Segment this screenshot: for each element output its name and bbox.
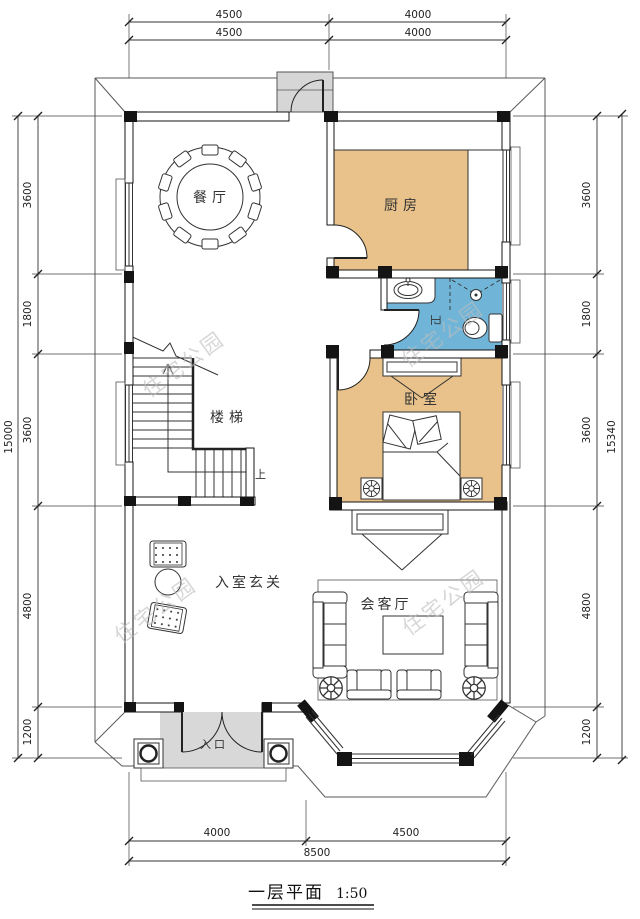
dim-left-5: 1200 <box>22 719 34 746</box>
label-stairs: 楼梯 <box>210 410 248 426</box>
title-scale: 1:50 <box>336 886 367 902</box>
label-dining: 餐厅 <box>193 190 231 206</box>
dimension-annotations: 4500 4000 4500 4000 4000 4500 8500 3600 … <box>3 9 628 866</box>
sofa-right <box>464 592 498 678</box>
dim-left-1: 3600 <box>22 182 34 209</box>
foyer-armchair-1 <box>150 541 186 567</box>
dim-left-3: 3600 <box>22 417 34 444</box>
label-kitchen: 厨房 <box>384 198 422 214</box>
dim-right-3: 3600 <box>581 417 593 444</box>
nightstand-left <box>361 478 382 499</box>
window-stairs-left <box>116 382 133 465</box>
plant-right <box>463 677 486 700</box>
dim-right-1: 3600 <box>581 182 593 209</box>
armchair-bottom-1 <box>347 670 391 699</box>
plant-left <box>320 677 343 700</box>
dim-left-2: 1800 <box>22 301 34 328</box>
bed <box>383 412 460 500</box>
dim-right-total: 15340 <box>606 420 618 453</box>
porch-column-right <box>264 739 293 768</box>
porch-step <box>141 768 286 781</box>
dims-left: 3600 1800 3600 4800 1200 15000 <box>3 112 122 762</box>
dims-right: 3600 1800 3600 4800 1200 15340 <box>513 110 628 764</box>
label-entrance: 入口 <box>200 738 228 751</box>
armchair-bottom-2 <box>397 670 441 699</box>
watermark-text: 住宅公园 <box>138 326 230 402</box>
window-bedroom-right <box>503 382 520 468</box>
dim-left-4: 4800 <box>22 593 34 620</box>
window-bath-right <box>503 280 520 343</box>
dim-bottom-left: 4000 <box>204 827 231 839</box>
bathroom-sink <box>387 278 435 303</box>
dim-top2-left: 4500 <box>216 27 243 39</box>
dims-top: 4500 4000 4500 4000 <box>125 9 510 78</box>
sofa-left <box>313 592 347 678</box>
dim-bottom-total: 8500 <box>304 847 331 859</box>
dim-top1-right: 4000 <box>405 9 432 21</box>
bedroom-bay-cabinet <box>352 510 448 570</box>
window-dining-left <box>116 179 133 270</box>
dim-right-4: 4800 <box>581 593 593 620</box>
dim-bottom-right: 4500 <box>393 827 420 839</box>
dim-right-2: 1800 <box>581 301 593 328</box>
dim-right-5: 1200 <box>581 719 593 746</box>
window-kitchen-right <box>503 147 520 245</box>
porch-column-left <box>134 739 163 768</box>
dim-left-total: 15000 <box>3 420 15 453</box>
drawing-title: 一层平面 1:50 <box>248 883 374 909</box>
title-text: 一层平面 <box>248 883 324 903</box>
nightstand-right <box>461 478 482 499</box>
floor-plan-image: 4500 4000 4500 4000 4000 4500 8500 3600 … <box>0 0 640 919</box>
dim-top1-left: 4500 <box>216 9 243 21</box>
label-stairs-up: 上 <box>255 468 266 481</box>
label-bedroom: 卧室 <box>404 391 442 408</box>
label-living: 会客厅 <box>361 596 412 613</box>
bay-window <box>306 711 505 763</box>
label-foyer: 入室玄关 <box>215 574 283 591</box>
dims-bottom: 4000 4500 8500 <box>125 772 510 866</box>
top-landing <box>277 72 333 112</box>
dim-top2-right: 4000 <box>405 27 432 39</box>
